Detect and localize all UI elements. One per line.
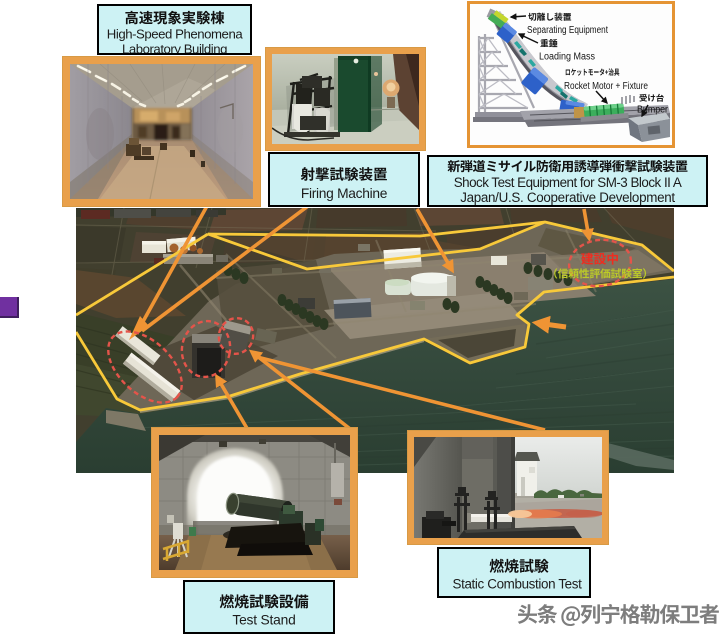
svg-text:Rocket Motor + Fixture: Rocket Motor + Fixture [564, 81, 648, 92]
svg-text:Japan/U.S. Cooperative Develop: Japan/U.S. Cooperative Development [460, 190, 675, 205]
svg-text:Shock Test Equipment for SM-3: Shock Test Equipment for SM-3 Block II A [454, 175, 682, 190]
svg-text:Static Combustion Test: Static Combustion Test [453, 577, 583, 592]
svg-text:Test Stand: Test Stand [232, 613, 295, 628]
svg-text:High-Speed Phenomena: High-Speed Phenomena [107, 27, 244, 42]
svg-text:Bumper: Bumper [637, 105, 669, 116]
svg-text:Separating Equipment: Separating Equipment [527, 25, 608, 36]
svg-text:Laboratory Building: Laboratory Building [122, 42, 227, 54]
svg-text:Loading Mass: Loading Mass [539, 52, 595, 63]
svg-text:Firing Machine: Firing Machine [301, 186, 388, 201]
